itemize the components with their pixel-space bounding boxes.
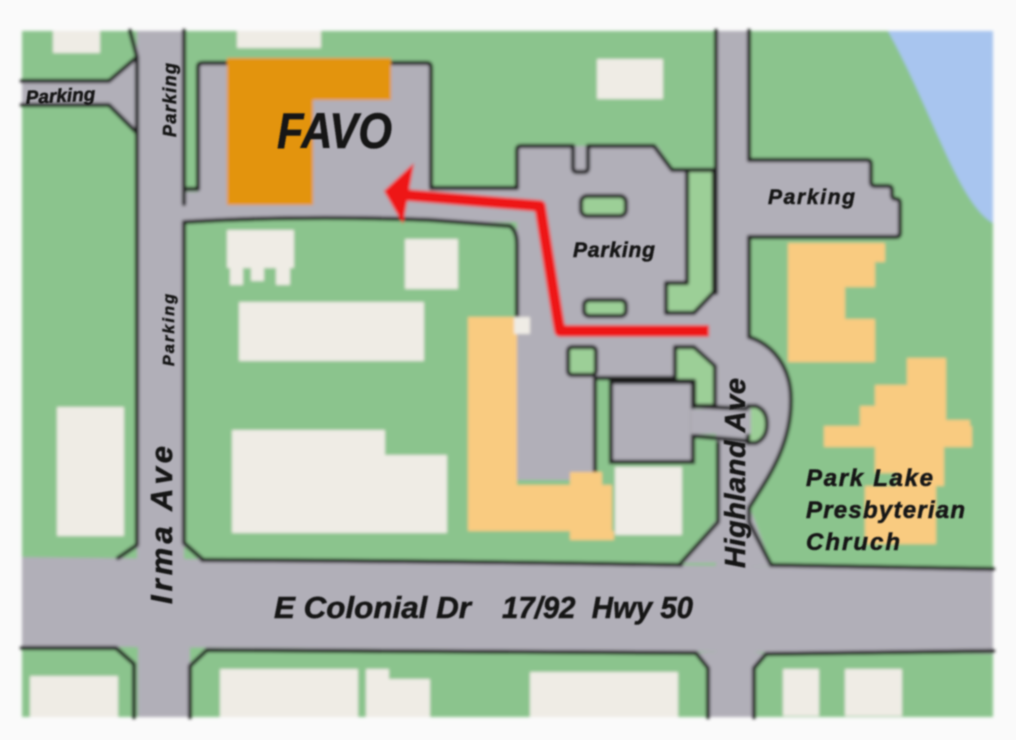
svg-text:Parking: Parking [25,84,96,109]
svg-text:Parking: Parking [768,186,855,209]
svg-text:17/92 Hwy 50: 17/92 Hwy 50 [502,590,693,625]
svg-text:Parking: Parking [160,63,180,137]
svg-text:Parking: Parking [573,239,655,262]
svg-text:Presbyterian: Presbyterian [806,497,965,524]
svg-text:Park Lake: Park Lake [806,465,933,492]
svg-text:E Colonial Dr: E Colonial Dr [274,590,473,625]
svg-text:Highland Ave: Highland Ave [720,378,752,568]
svg-text:Chruch: Chruch [806,529,900,556]
svg-text:FAVO: FAVO [277,103,392,159]
